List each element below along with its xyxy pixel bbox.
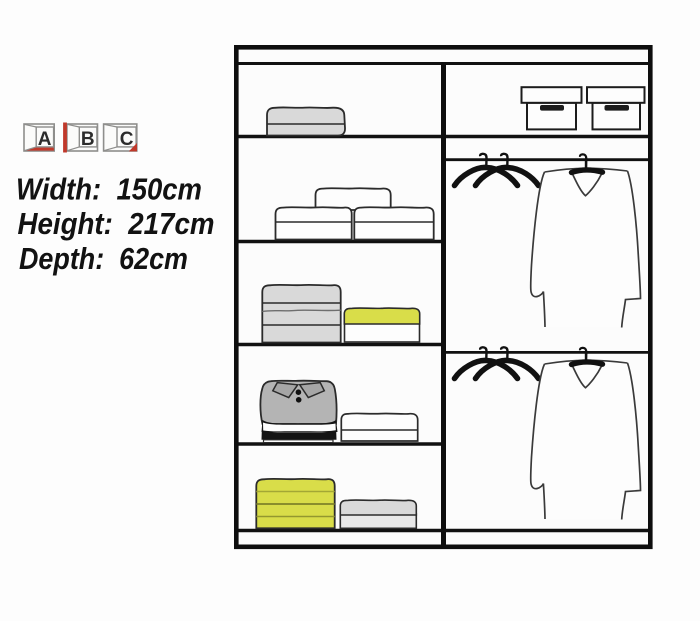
svg-text:Width: 150cm: Width: 150cm bbox=[16, 173, 202, 207]
svg-text:Height: 217cm: Height: 217cm bbox=[18, 207, 215, 241]
svg-text:A: A bbox=[38, 129, 52, 150]
svg-text:Depth: 62cm: Depth: 62cm bbox=[19, 242, 188, 276]
svg-text:B: B bbox=[81, 129, 95, 150]
svg-text:C: C bbox=[120, 129, 134, 150]
